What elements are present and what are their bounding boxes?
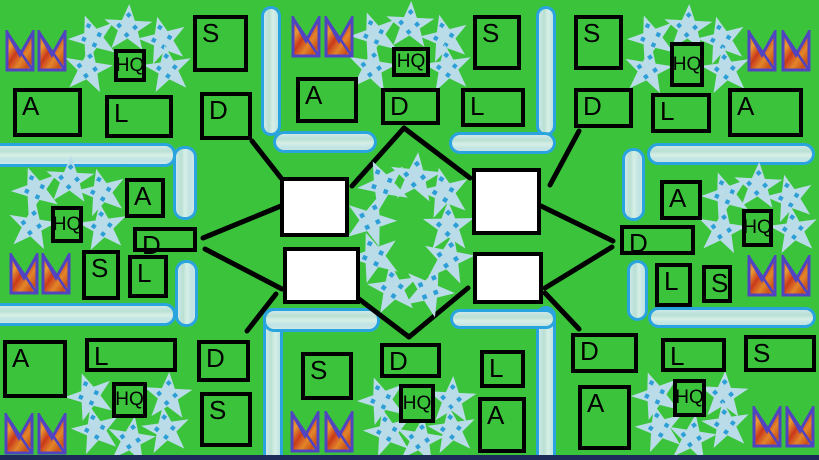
- box-s-middle-right: S: [702, 265, 732, 303]
- box-a-top-right: A: [728, 88, 803, 137]
- crown-icon: [324, 411, 354, 453]
- box-d-middle-right: D: [620, 225, 695, 255]
- box-s-top-left: S: [193, 15, 248, 72]
- box-a-middle-left: A: [125, 178, 165, 218]
- connection-line: [252, 141, 281, 178]
- box-a-bottom-middle: A: [478, 397, 526, 453]
- crown-icon: [781, 30, 811, 72]
- box-a-top-middle: A: [296, 77, 358, 123]
- connection-line: [247, 294, 276, 331]
- box-l-top-left: L: [105, 95, 173, 138]
- crown-icon: [290, 411, 320, 453]
- box-s-top-right: S: [574, 15, 623, 70]
- crown-icon: [747, 30, 777, 72]
- crown-icon: [747, 255, 777, 297]
- box-l-bottom-middle: L: [480, 350, 525, 388]
- crown-icon: [324, 16, 354, 58]
- box-d-bottom-left: D: [197, 340, 250, 382]
- objective-white-square: [472, 168, 541, 235]
- box-a-bottom-left: A: [3, 340, 67, 398]
- box-hq-bottom-middle: HQ: [399, 384, 435, 423]
- box-d-middle-left: D: [133, 227, 197, 252]
- connection-line: [545, 293, 579, 329]
- box-l-bottom-right: L: [661, 338, 726, 372]
- connection-line: [205, 249, 282, 289]
- box-hq-bottom-right: HQ: [673, 379, 706, 417]
- connection-line: [203, 206, 281, 238]
- box-d-top-middle: D: [381, 88, 440, 125]
- box-s-bottom-middle: S: [301, 352, 353, 400]
- box-a-bottom-right: A: [578, 385, 631, 450]
- bottom-border-strip: [0, 455, 819, 460]
- objective-white-square: [280, 177, 349, 237]
- crown-icon: [785, 406, 815, 448]
- box-hq-middle-left: HQ: [51, 206, 83, 243]
- box-l-middle-right: L: [655, 263, 692, 307]
- box-a-middle-right: A: [660, 180, 702, 220]
- crown-icon: [291, 16, 321, 58]
- box-hq-top-middle: HQ: [392, 47, 430, 77]
- box-hq-top-left: HQ: [114, 49, 146, 82]
- box-hq-top-right: HQ: [670, 42, 704, 87]
- box-l-bottom-left: L: [85, 338, 177, 372]
- box-l-top-right: L: [651, 93, 711, 133]
- crown-icon: [5, 30, 35, 72]
- box-l-top-middle: L: [461, 88, 525, 127]
- connection-line: [550, 131, 579, 185]
- star-icon: [75, 199, 131, 255]
- connection-line: [541, 206, 613, 241]
- box-s-bottom-right: S: [744, 335, 816, 372]
- crown-icon: [37, 30, 67, 72]
- box-hq-middle-right: HQ: [742, 209, 773, 247]
- box-hq-bottom-left: HQ: [112, 382, 147, 418]
- box-d-bottom-right: D: [571, 333, 638, 373]
- box-l-middle-left: L: [128, 255, 168, 298]
- star-icon: [698, 397, 754, 453]
- box-d-top-right: D: [574, 88, 633, 128]
- map-canvas: SHQALDHQSADLSHQDLAHQADSLADLSHQALDSHQSDLA…: [0, 0, 819, 460]
- crown-icon: [781, 255, 811, 297]
- crown-icon: [752, 406, 782, 448]
- crown-icon: [41, 253, 71, 295]
- box-s-middle-left: S: [82, 250, 120, 300]
- box-d-top-left: D: [200, 92, 252, 140]
- objective-white-square: [473, 252, 543, 304]
- star-icon: [766, 202, 819, 258]
- objective-white-square: [283, 247, 360, 304]
- connection-line: [545, 247, 612, 288]
- box-d-bottom-middle: D: [380, 343, 441, 378]
- box-s-bottom-left: S: [200, 392, 252, 447]
- star-icon: [140, 41, 196, 97]
- crown-icon: [4, 413, 34, 455]
- crown-icon: [37, 413, 67, 455]
- crown-icon: [9, 253, 39, 295]
- box-s-top-middle: S: [473, 15, 521, 70]
- box-a-top-left: A: [13, 88, 82, 137]
